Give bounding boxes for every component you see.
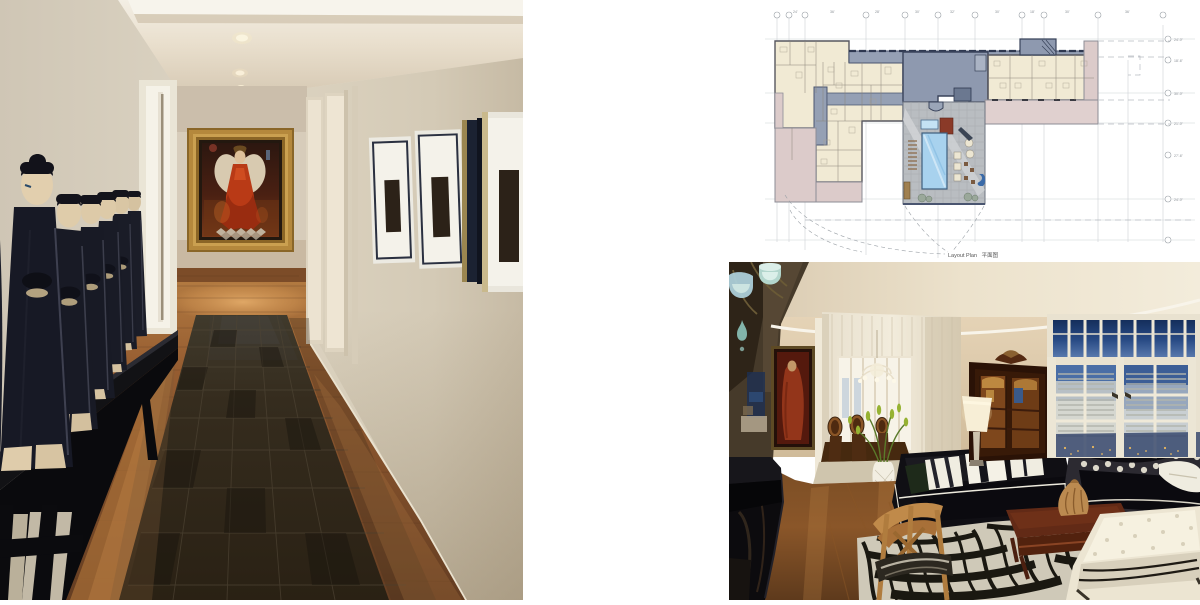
- svg-text:36': 36': [830, 10, 835, 14]
- svg-text:28': 28': [875, 10, 880, 14]
- svg-text:24'-0": 24'-0": [1174, 38, 1184, 42]
- svg-text:21'-0": 21'-0": [1174, 122, 1184, 126]
- svg-text:36': 36': [1125, 10, 1130, 14]
- svg-text:30': 30': [915, 10, 920, 14]
- svg-text:18': 18': [1030, 10, 1035, 14]
- svg-text:Layout Plan 平面图: Layout Plan 平面图: [948, 251, 999, 259]
- svg-text:30': 30': [1065, 10, 1070, 14]
- svg-text:18'-6": 18'-6": [1174, 59, 1184, 63]
- svg-text:30'-0": 30'-0": [1174, 92, 1184, 96]
- svg-text:30': 30': [995, 10, 1000, 14]
- svg-text:27'-6": 27'-6": [1174, 154, 1184, 158]
- svg-text:24': 24': [793, 10, 798, 14]
- svg-text:32': 32': [950, 10, 955, 14]
- svg-text:24'-0": 24'-0": [1174, 198, 1184, 202]
